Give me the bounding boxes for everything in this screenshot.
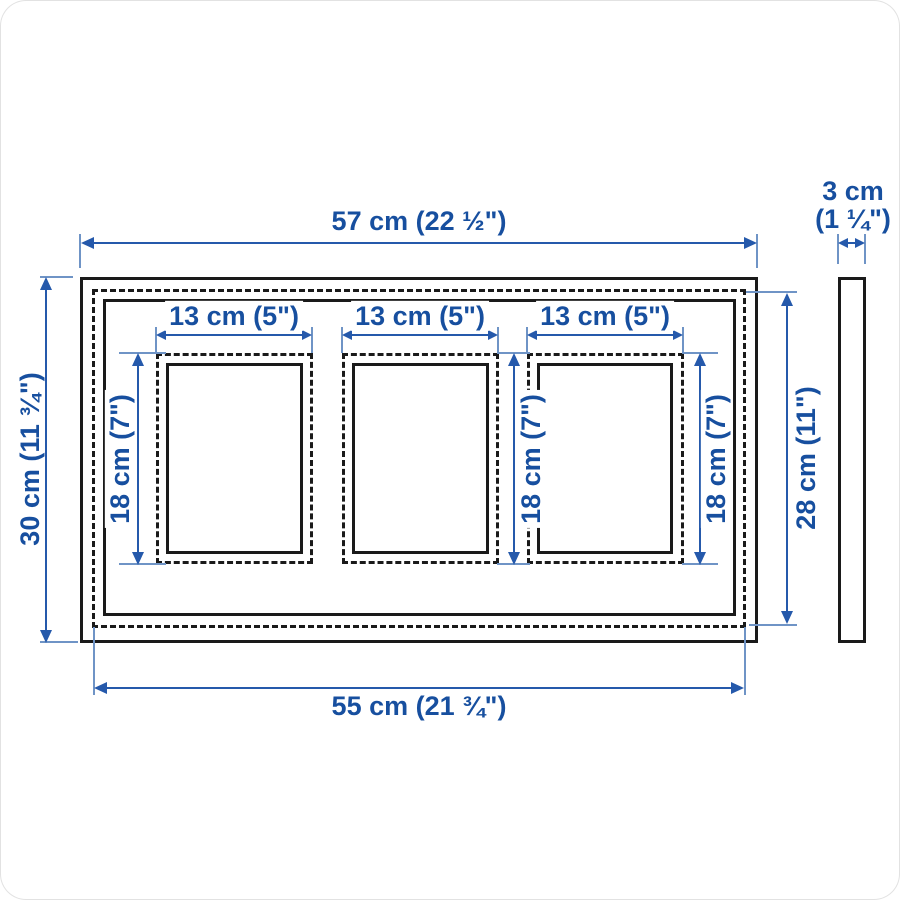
opening-3-window xyxy=(537,363,673,554)
arrowhead-right xyxy=(673,330,683,340)
dimension-line xyxy=(158,334,310,336)
arrowhead-right xyxy=(744,237,757,249)
dim-depth-label-inch: (1 ¼") xyxy=(811,204,895,234)
dimension-line xyxy=(344,334,496,336)
extension-line xyxy=(749,624,797,626)
dimension-line xyxy=(513,357,515,560)
arrowhead-left xyxy=(527,330,537,340)
dim-overall-width-label: 57 cm (22 ½") xyxy=(328,206,511,236)
dimension-line xyxy=(786,297,788,620)
arrowhead-up xyxy=(694,353,706,366)
arrowhead-left xyxy=(342,330,352,340)
arrowhead-left xyxy=(94,682,107,694)
dim-opening-height-label: 18 cm (7") xyxy=(701,390,731,528)
dim-opening-2-width-label: 13 cm (5") xyxy=(351,301,489,331)
arrowhead-down xyxy=(508,552,520,565)
arrowhead-right xyxy=(731,682,744,694)
arrowhead-left xyxy=(838,238,848,248)
arrowhead-down xyxy=(132,552,144,565)
dim-back-height-label: 28 cm (11") xyxy=(791,382,821,533)
opening-2-window xyxy=(352,363,489,554)
diagram-canvas: 57 cm (22 ½") 3 cm (1 ¼") 30 cm (11 ¾") … xyxy=(0,0,900,900)
dim-opening-1-width-label: 13 cm (5") xyxy=(165,301,303,331)
dimension-line xyxy=(137,357,139,560)
arrowhead-up xyxy=(781,293,793,306)
dim-overall-height-label: 30 cm (11 ¾") xyxy=(15,368,45,549)
dim-back-width-label: 55 cm (21 ¾") xyxy=(328,691,511,721)
dim-opening-height-label: 18 cm (7") xyxy=(105,390,135,528)
arrowhead-up xyxy=(40,277,52,290)
dimension-line xyxy=(529,334,681,336)
arrowhead-up xyxy=(132,353,144,366)
arrowhead-down xyxy=(781,611,793,624)
arrowhead-down xyxy=(40,630,52,643)
dimension-line xyxy=(45,281,47,638)
extension-line xyxy=(744,627,746,695)
dimension-line xyxy=(84,242,754,244)
opening-1-window xyxy=(166,363,303,554)
dim-opening-3-width-label: 13 cm (5") xyxy=(536,301,674,331)
dim-opening-height-label: 18 cm (7") xyxy=(516,390,546,528)
arrowhead-right xyxy=(488,330,498,340)
arrowhead-right xyxy=(855,238,865,248)
dimension-line xyxy=(97,687,741,689)
arrowhead-left xyxy=(156,330,166,340)
frame-side-profile xyxy=(838,277,866,643)
arrowhead-right xyxy=(302,330,312,340)
arrowhead-left xyxy=(81,237,94,249)
arrowhead-up xyxy=(508,353,520,366)
arrowhead-down xyxy=(694,552,706,565)
dim-depth-label-cm: 3 cm xyxy=(818,176,888,206)
